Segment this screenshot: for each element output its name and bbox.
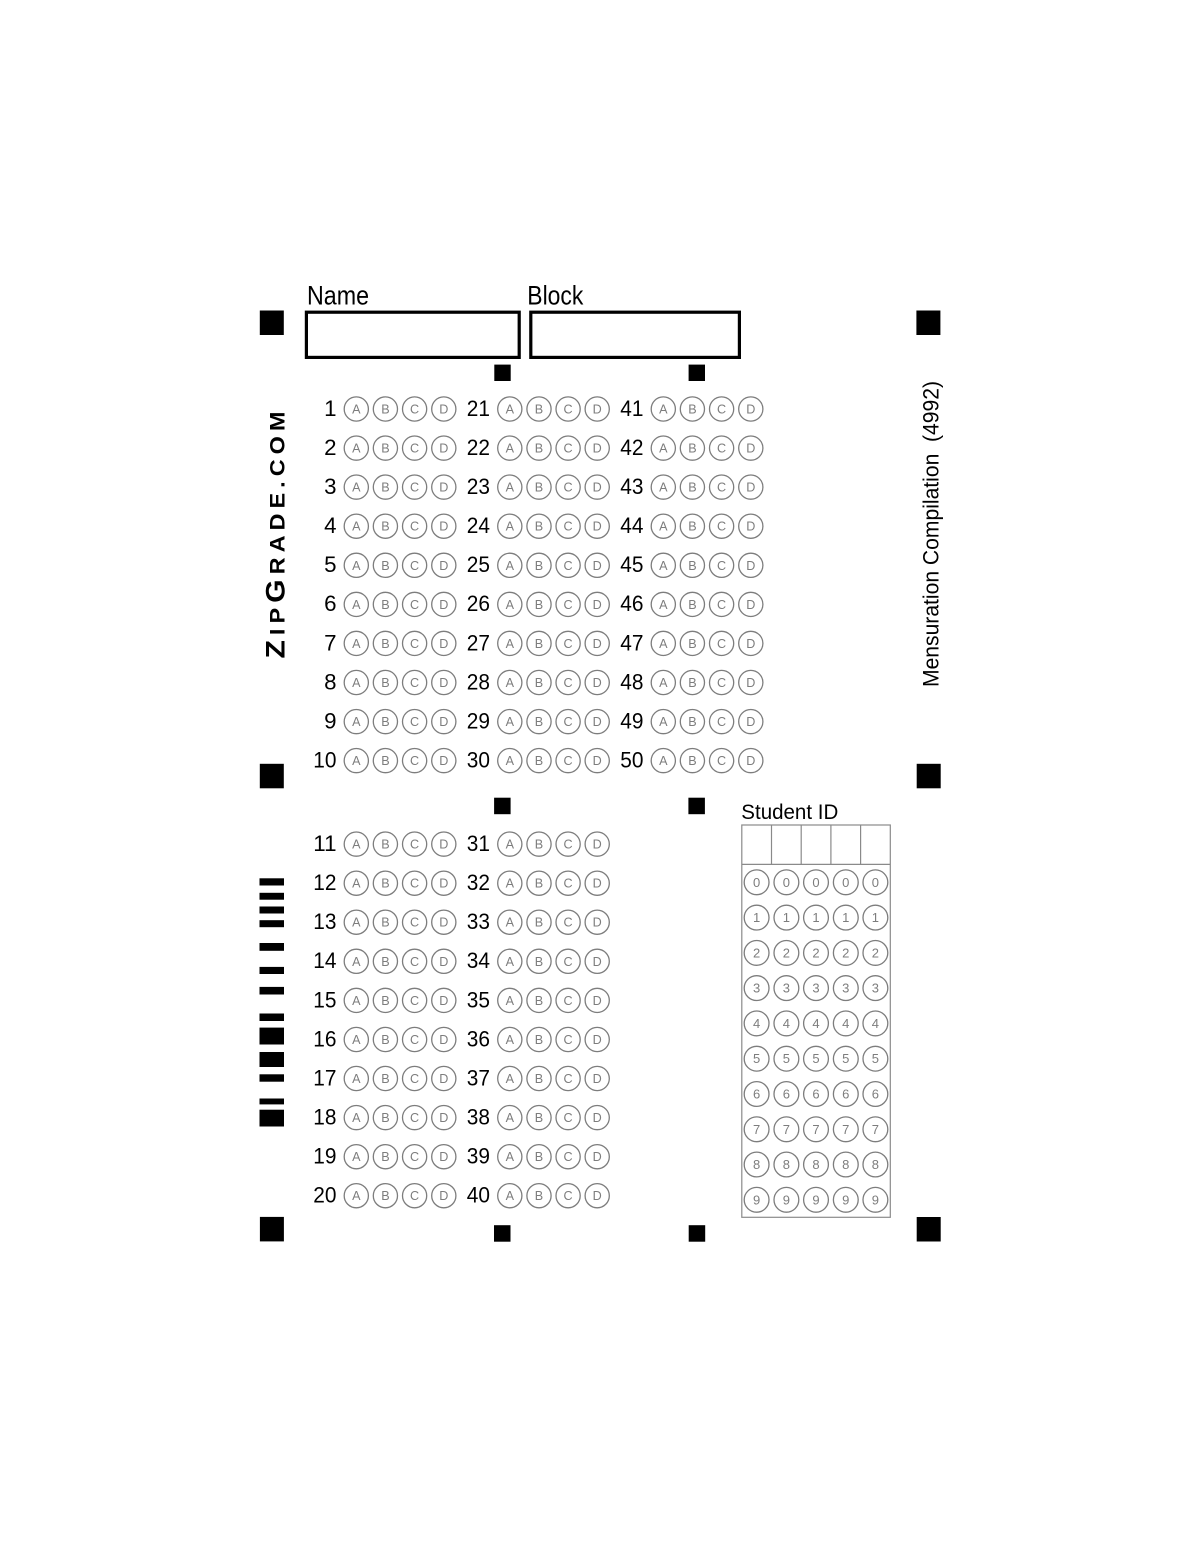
svg-text:41: 41 xyxy=(620,396,643,421)
svg-text:30: 30 xyxy=(467,748,490,773)
svg-text:B: B xyxy=(381,1111,389,1125)
svg-text:6: 6 xyxy=(872,1087,879,1102)
svg-text:D: D xyxy=(593,877,602,891)
svg-text:B: B xyxy=(535,916,543,930)
svg-text:B: B xyxy=(535,520,543,534)
svg-text:B: B xyxy=(381,715,389,729)
svg-text:D: D xyxy=(593,916,602,930)
svg-text:5: 5 xyxy=(324,552,336,577)
svg-text:A: A xyxy=(352,916,361,930)
svg-text:A: A xyxy=(506,1072,515,1086)
svg-text:B: B xyxy=(381,637,389,651)
svg-text:A: A xyxy=(659,715,668,729)
svg-text:C: C xyxy=(564,877,573,891)
svg-text:C: C xyxy=(717,754,726,768)
svg-text:C: C xyxy=(564,598,573,612)
svg-text:0: 0 xyxy=(842,875,849,890)
svg-text:Block: Block xyxy=(527,280,583,310)
svg-text:A: A xyxy=(352,559,361,573)
svg-text:3: 3 xyxy=(842,981,849,996)
svg-text:B: B xyxy=(381,1033,389,1047)
svg-text:D: D xyxy=(439,994,448,1008)
svg-text:A: A xyxy=(506,520,515,534)
svg-text:C: C xyxy=(564,1150,573,1164)
svg-text:D: D xyxy=(439,1033,448,1047)
svg-text:C: C xyxy=(410,916,419,930)
svg-text:B: B xyxy=(688,481,696,495)
svg-text:D: D xyxy=(593,838,602,852)
svg-text:B: B xyxy=(381,754,389,768)
svg-text:13: 13 xyxy=(313,909,336,934)
svg-text:C: C xyxy=(564,838,573,852)
svg-text:A: A xyxy=(659,598,668,612)
svg-text:B: B xyxy=(535,403,543,417)
svg-text:14: 14 xyxy=(313,948,336,973)
svg-text:A: A xyxy=(352,1150,361,1164)
svg-text:D: D xyxy=(593,481,602,495)
svg-text:A: A xyxy=(506,1189,515,1203)
svg-text:C: C xyxy=(410,598,419,612)
svg-text:2: 2 xyxy=(872,945,879,960)
svg-text:B: B xyxy=(381,598,389,612)
svg-text:A: A xyxy=(659,559,668,573)
svg-text:44: 44 xyxy=(620,513,643,538)
svg-text:D: D xyxy=(439,1150,448,1164)
svg-text:17: 17 xyxy=(313,1065,336,1090)
svg-text:A: A xyxy=(506,1111,515,1125)
svg-text:6: 6 xyxy=(783,1087,790,1102)
svg-text:49: 49 xyxy=(620,709,643,734)
svg-text:35: 35 xyxy=(467,987,490,1012)
svg-text:5: 5 xyxy=(812,1051,819,1066)
svg-text:D: D xyxy=(439,916,448,930)
svg-text:5: 5 xyxy=(783,1051,790,1066)
svg-text:11: 11 xyxy=(313,831,336,856)
svg-text:7: 7 xyxy=(324,630,336,655)
svg-text:9: 9 xyxy=(753,1192,760,1207)
svg-text:D: D xyxy=(746,520,755,534)
svg-text:B: B xyxy=(381,676,389,690)
svg-text:A: A xyxy=(352,442,361,456)
svg-text:B: B xyxy=(381,1189,389,1203)
svg-text:7: 7 xyxy=(872,1122,879,1137)
svg-text:A: A xyxy=(352,481,361,495)
svg-text:C: C xyxy=(410,754,419,768)
svg-text:A: A xyxy=(506,715,515,729)
svg-text:2: 2 xyxy=(783,945,790,960)
svg-text:4: 4 xyxy=(842,1016,849,1031)
svg-text:9: 9 xyxy=(812,1192,819,1207)
svg-text:B: B xyxy=(381,442,389,456)
svg-text:C: C xyxy=(564,754,573,768)
svg-text:B: B xyxy=(381,916,389,930)
svg-text:C: C xyxy=(717,481,726,495)
svg-text:C: C xyxy=(410,1150,419,1164)
svg-text:C: C xyxy=(564,481,573,495)
svg-text:D: D xyxy=(746,754,755,768)
svg-text:A: A xyxy=(506,1033,515,1047)
svg-text:B: B xyxy=(381,1150,389,1164)
svg-text:3: 3 xyxy=(872,981,879,996)
svg-text:D: D xyxy=(593,520,602,534)
svg-text:C: C xyxy=(564,1189,573,1203)
svg-text:Student ID: Student ID xyxy=(741,801,838,824)
svg-text:6: 6 xyxy=(753,1087,760,1102)
svg-text:3: 3 xyxy=(812,981,819,996)
svg-text:A: A xyxy=(352,403,361,417)
svg-text:C: C xyxy=(410,1072,419,1086)
svg-text:38: 38 xyxy=(467,1105,490,1130)
svg-text:2: 2 xyxy=(753,945,760,960)
svg-text:A: A xyxy=(506,994,515,1008)
svg-text:D: D xyxy=(593,1189,602,1203)
svg-text:D: D xyxy=(746,637,755,651)
svg-text:24: 24 xyxy=(467,513,490,538)
svg-text:B: B xyxy=(535,955,543,969)
svg-text:20: 20 xyxy=(313,1183,336,1208)
svg-text:C: C xyxy=(717,637,726,651)
svg-text:D: D xyxy=(746,559,755,573)
svg-text:1: 1 xyxy=(842,910,849,925)
svg-text:B: B xyxy=(535,481,543,495)
svg-text:1: 1 xyxy=(783,910,790,925)
svg-text:5: 5 xyxy=(872,1051,879,1066)
svg-text:D: D xyxy=(593,1072,602,1086)
svg-text:2: 2 xyxy=(324,435,336,460)
svg-text:B: B xyxy=(535,442,543,456)
svg-text:D: D xyxy=(439,676,448,690)
svg-text:A: A xyxy=(352,877,361,891)
svg-text:9: 9 xyxy=(783,1192,790,1207)
svg-text:C: C xyxy=(410,877,419,891)
svg-text:C: C xyxy=(564,994,573,1008)
svg-text:6: 6 xyxy=(842,1087,849,1102)
svg-text:Mensuration Compilation (4992: Mensuration Compilation (4992) xyxy=(918,381,943,687)
svg-text:D: D xyxy=(593,955,602,969)
svg-text:A: A xyxy=(506,877,515,891)
svg-text:C: C xyxy=(410,955,419,969)
svg-text:A: A xyxy=(659,481,668,495)
svg-text:B: B xyxy=(535,1111,543,1125)
svg-text:42: 42 xyxy=(620,435,643,460)
svg-text:B: B xyxy=(381,520,389,534)
svg-text:40: 40 xyxy=(467,1183,490,1208)
svg-text:4: 4 xyxy=(753,1016,760,1031)
svg-text:D: D xyxy=(439,955,448,969)
svg-text:D: D xyxy=(439,1189,448,1203)
svg-text:C: C xyxy=(564,676,573,690)
svg-text:A: A xyxy=(506,676,515,690)
svg-text:C: C xyxy=(717,676,726,690)
svg-text:B: B xyxy=(688,637,696,651)
svg-text:B: B xyxy=(535,1150,543,1164)
svg-text:A: A xyxy=(352,754,361,768)
svg-text:B: B xyxy=(535,994,543,1008)
svg-text:37: 37 xyxy=(467,1065,490,1090)
svg-text:3: 3 xyxy=(753,981,760,996)
svg-text:A: A xyxy=(506,838,515,852)
svg-text:C: C xyxy=(410,1033,419,1047)
svg-text:C: C xyxy=(717,442,726,456)
svg-text:A: A xyxy=(506,403,515,417)
svg-text:C: C xyxy=(410,559,419,573)
svg-text:C: C xyxy=(410,637,419,651)
svg-text:B: B xyxy=(688,598,696,612)
svg-text:A: A xyxy=(659,442,668,456)
svg-text:C: C xyxy=(564,442,573,456)
svg-text:C: C xyxy=(717,715,726,729)
svg-text:43: 43 xyxy=(620,474,643,499)
svg-text:A: A xyxy=(352,637,361,651)
svg-text:D: D xyxy=(439,877,448,891)
svg-text:C: C xyxy=(564,520,573,534)
svg-text:A: A xyxy=(506,598,515,612)
svg-text:C: C xyxy=(410,838,419,852)
svg-text:B: B xyxy=(688,715,696,729)
svg-text:B: B xyxy=(381,955,389,969)
svg-text:7: 7 xyxy=(753,1122,760,1137)
svg-text:B: B xyxy=(688,676,696,690)
svg-text:C: C xyxy=(564,1033,573,1047)
svg-text:4: 4 xyxy=(812,1016,819,1031)
svg-text:8: 8 xyxy=(812,1157,819,1172)
svg-text:9: 9 xyxy=(324,709,336,734)
svg-text:A: A xyxy=(506,637,515,651)
svg-text:33: 33 xyxy=(467,909,490,934)
svg-text:C: C xyxy=(564,1111,573,1125)
svg-text:26: 26 xyxy=(467,591,490,616)
svg-text:3: 3 xyxy=(324,474,336,499)
svg-text:D: D xyxy=(439,637,448,651)
svg-text:B: B xyxy=(381,877,389,891)
svg-text:8: 8 xyxy=(753,1157,760,1172)
svg-text:A: A xyxy=(506,559,515,573)
svg-text:D: D xyxy=(593,1033,602,1047)
svg-text:12: 12 xyxy=(313,870,336,895)
svg-text:D: D xyxy=(439,1072,448,1086)
svg-text:C: C xyxy=(564,637,573,651)
svg-text:B: B xyxy=(535,1189,543,1203)
svg-text:D: D xyxy=(746,715,755,729)
svg-text:4: 4 xyxy=(783,1016,790,1031)
svg-text:2: 2 xyxy=(842,945,849,960)
svg-text:16: 16 xyxy=(313,1026,336,1051)
svg-text:C: C xyxy=(717,403,726,417)
svg-text:B: B xyxy=(381,481,389,495)
svg-text:3: 3 xyxy=(783,981,790,996)
svg-text:0: 0 xyxy=(872,875,879,890)
svg-text:C: C xyxy=(564,403,573,417)
svg-text:B: B xyxy=(381,403,389,417)
svg-text:5: 5 xyxy=(842,1051,849,1066)
svg-text:A: A xyxy=(506,1150,515,1164)
svg-text:7: 7 xyxy=(842,1122,849,1137)
svg-text:B: B xyxy=(535,1072,543,1086)
svg-text:B: B xyxy=(688,754,696,768)
svg-text:C: C xyxy=(564,916,573,930)
svg-text:B: B xyxy=(381,994,389,1008)
svg-text:A: A xyxy=(506,955,515,969)
svg-text:A: A xyxy=(506,754,515,768)
svg-text:B: B xyxy=(688,559,696,573)
svg-text:A: A xyxy=(352,520,361,534)
svg-text:C: C xyxy=(410,403,419,417)
svg-text:6: 6 xyxy=(324,591,336,616)
svg-text:A: A xyxy=(352,838,361,852)
svg-text:C: C xyxy=(410,481,419,495)
svg-text:19: 19 xyxy=(313,1144,336,1169)
svg-text:B: B xyxy=(535,1033,543,1047)
svg-text:8: 8 xyxy=(324,669,336,694)
svg-text:A: A xyxy=(352,1111,361,1125)
svg-text:0: 0 xyxy=(783,875,790,890)
svg-text:8: 8 xyxy=(872,1157,879,1172)
svg-text:A: A xyxy=(659,676,668,690)
svg-text:0: 0 xyxy=(812,875,819,890)
svg-text:5: 5 xyxy=(753,1051,760,1066)
svg-text:A: A xyxy=(352,1033,361,1047)
svg-text:D: D xyxy=(439,598,448,612)
svg-text:7: 7 xyxy=(812,1122,819,1137)
svg-text:B: B xyxy=(535,637,543,651)
svg-text:15: 15 xyxy=(313,987,336,1012)
svg-text:B: B xyxy=(535,676,543,690)
svg-text:A: A xyxy=(352,955,361,969)
svg-text:C: C xyxy=(410,676,419,690)
svg-text:C: C xyxy=(410,1111,419,1125)
svg-text:C: C xyxy=(564,559,573,573)
svg-text:25: 25 xyxy=(467,552,490,577)
svg-text:A: A xyxy=(659,520,668,534)
svg-text:B: B xyxy=(535,838,543,852)
svg-text:34: 34 xyxy=(467,948,490,973)
svg-text:D: D xyxy=(746,442,755,456)
svg-text:A: A xyxy=(352,1189,361,1203)
svg-text:D: D xyxy=(593,1111,602,1125)
svg-text:9: 9 xyxy=(872,1192,879,1207)
svg-text:D: D xyxy=(439,715,448,729)
svg-text:B: B xyxy=(535,559,543,573)
svg-text:0: 0 xyxy=(753,875,760,890)
svg-text:Name: Name xyxy=(307,280,369,310)
svg-text:A: A xyxy=(352,598,361,612)
svg-text:A: A xyxy=(352,1072,361,1086)
svg-text:A: A xyxy=(506,442,515,456)
svg-text:8: 8 xyxy=(842,1157,849,1172)
svg-text:1: 1 xyxy=(812,910,819,925)
svg-text:7: 7 xyxy=(783,1122,790,1137)
svg-text:A: A xyxy=(506,481,515,495)
svg-text:C: C xyxy=(410,1189,419,1203)
svg-text:2: 2 xyxy=(812,945,819,960)
svg-text:A: A xyxy=(506,916,515,930)
svg-text:50: 50 xyxy=(620,748,643,773)
svg-text:B: B xyxy=(381,838,389,852)
svg-text:C: C xyxy=(717,520,726,534)
svg-text:23: 23 xyxy=(467,474,490,499)
svg-text:D: D xyxy=(439,442,448,456)
svg-text:6: 6 xyxy=(812,1087,819,1102)
svg-text:C: C xyxy=(410,520,419,534)
svg-text:D: D xyxy=(439,481,448,495)
svg-text:C: C xyxy=(564,1072,573,1086)
svg-text:27: 27 xyxy=(467,630,490,655)
svg-text:9: 9 xyxy=(842,1192,849,1207)
svg-text:29: 29 xyxy=(467,709,490,734)
svg-text:A: A xyxy=(352,994,361,1008)
svg-text:39: 39 xyxy=(467,1144,490,1169)
svg-text:D: D xyxy=(593,403,602,417)
svg-text:D: D xyxy=(593,676,602,690)
svg-text:1: 1 xyxy=(872,910,879,925)
svg-text:D: D xyxy=(439,520,448,534)
svg-text:18: 18 xyxy=(313,1105,336,1130)
svg-text:B: B xyxy=(688,520,696,534)
svg-text:A: A xyxy=(352,715,361,729)
svg-text:C: C xyxy=(564,955,573,969)
svg-text:C: C xyxy=(410,442,419,456)
svg-text:B: B xyxy=(535,598,543,612)
svg-text:D: D xyxy=(439,1111,448,1125)
svg-text:1: 1 xyxy=(324,396,336,421)
svg-text:D: D xyxy=(746,676,755,690)
svg-text:D: D xyxy=(439,559,448,573)
svg-text:46: 46 xyxy=(620,591,643,616)
svg-text:48: 48 xyxy=(620,669,643,694)
svg-text:21: 21 xyxy=(467,396,490,421)
svg-text:D: D xyxy=(439,403,448,417)
svg-text:B: B xyxy=(535,877,543,891)
svg-text:C: C xyxy=(717,598,726,612)
svg-text:36: 36 xyxy=(467,1026,490,1051)
svg-text:D: D xyxy=(746,481,755,495)
svg-text:47: 47 xyxy=(620,630,643,655)
svg-text:D: D xyxy=(593,994,602,1008)
svg-text:22: 22 xyxy=(467,435,490,460)
svg-text:B: B xyxy=(381,559,389,573)
svg-text:B: B xyxy=(381,1072,389,1086)
svg-text:C: C xyxy=(564,715,573,729)
svg-text:D: D xyxy=(439,754,448,768)
svg-text:D: D xyxy=(746,598,755,612)
svg-text:D: D xyxy=(593,754,602,768)
svg-text:A: A xyxy=(659,754,668,768)
svg-text:D: D xyxy=(593,637,602,651)
svg-text:8: 8 xyxy=(783,1157,790,1172)
svg-text:4: 4 xyxy=(872,1016,879,1031)
svg-text:A: A xyxy=(352,676,361,690)
svg-text:B: B xyxy=(688,403,696,417)
svg-text:4: 4 xyxy=(324,513,336,538)
svg-text:D: D xyxy=(439,838,448,852)
svg-text:D: D xyxy=(593,598,602,612)
svg-text:D: D xyxy=(593,1150,602,1164)
svg-text:D: D xyxy=(593,715,602,729)
svg-text:D: D xyxy=(593,559,602,573)
svg-text:B: B xyxy=(535,754,543,768)
svg-text:45: 45 xyxy=(620,552,643,577)
svg-text:A: A xyxy=(659,403,668,417)
svg-text:B: B xyxy=(688,442,696,456)
svg-text:10: 10 xyxy=(313,748,336,773)
svg-text:B: B xyxy=(535,715,543,729)
svg-text:C: C xyxy=(410,715,419,729)
svg-text:D: D xyxy=(593,442,602,456)
svg-text:C: C xyxy=(410,994,419,1008)
svg-text:31: 31 xyxy=(467,831,490,856)
svg-text:A: A xyxy=(659,637,668,651)
svg-text:D: D xyxy=(746,403,755,417)
